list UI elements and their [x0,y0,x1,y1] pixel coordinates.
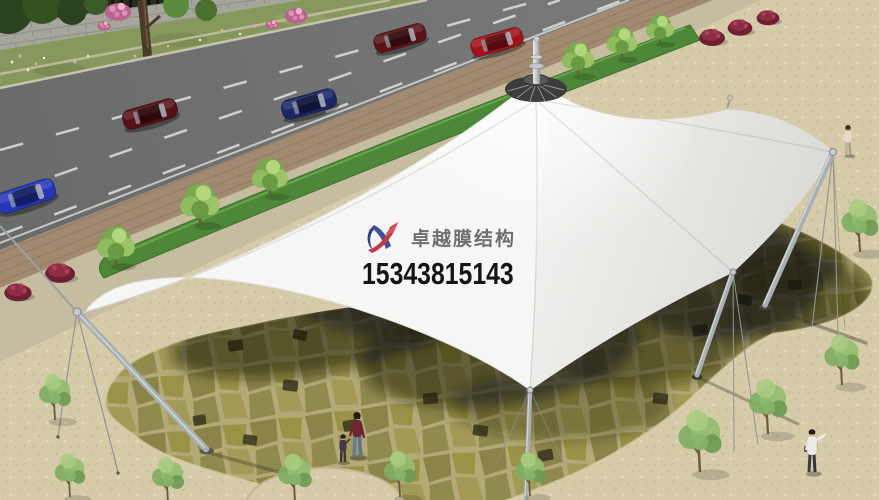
rendering-stage: 卓越膜结构 15343815143 [0,0,879,500]
rendering-canvas [0,0,879,500]
